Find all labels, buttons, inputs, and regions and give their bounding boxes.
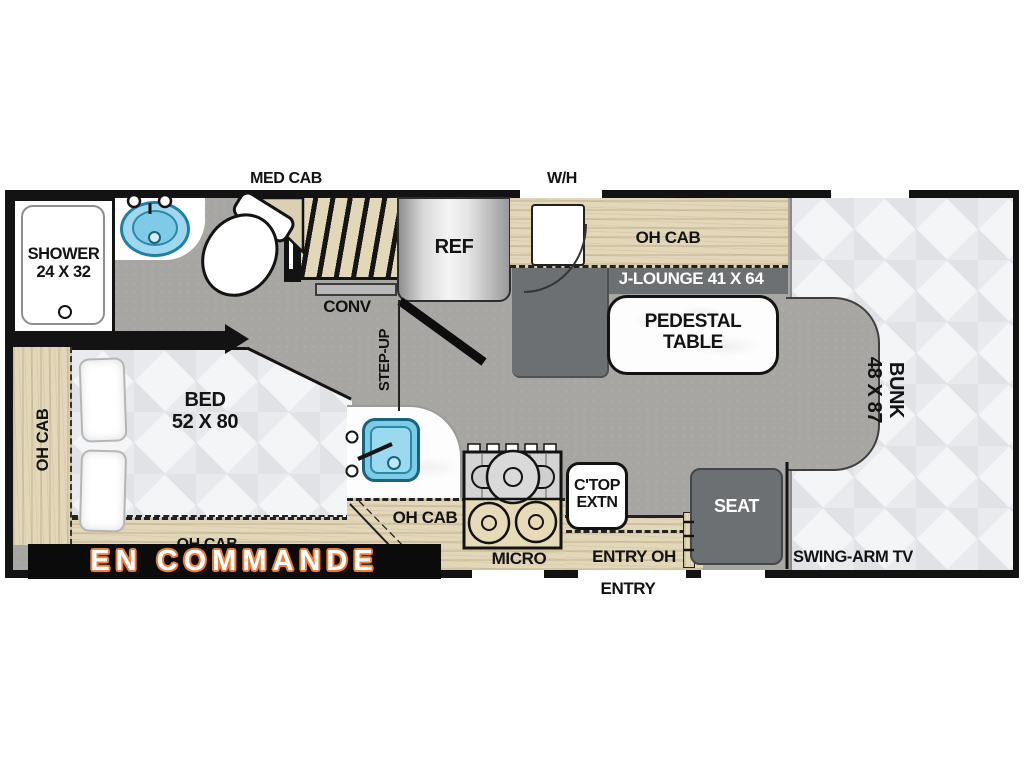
bed-label-line1: BED <box>140 390 270 412</box>
j-lounge-seat <box>512 268 609 378</box>
pillow <box>79 449 127 532</box>
kitchen-sink-drain <box>387 456 401 470</box>
ctop-label-line1: C'TOP <box>566 477 628 494</box>
step-up-label: STEP-UP <box>377 320 397 400</box>
pedestal-label-line2: TABLE <box>607 333 779 354</box>
window-gap <box>520 189 602 198</box>
shower-drain <box>58 305 72 319</box>
pillow <box>79 357 128 443</box>
bunk-label: BUNK 48 X 87 <box>856 315 906 465</box>
med-cab-door <box>289 205 293 269</box>
conv-cabinet <box>301 198 397 280</box>
oh-cab-left-label: OH CAB <box>35 402 55 478</box>
micro-label: MICRO <box>479 550 559 568</box>
water-heater-label: W/H <box>522 170 602 187</box>
status-banner: EN COMMANDE <box>28 544 441 579</box>
shower-label: SHOWER 24 X 32 <box>16 246 111 282</box>
ctop-extn-label: C'TOP EXTN <box>566 477 628 512</box>
bed-label-line2: 52 X 80 <box>140 412 270 434</box>
entry-door-gap <box>578 570 686 578</box>
entry-oh-label: ENTRY OH <box>570 548 698 566</box>
j-lounge-label: J-LOUNGE 41 X 64 <box>596 270 786 288</box>
conv-label: CONV <box>307 298 387 316</box>
oh-cab-kitchen-label: OH CAB <box>385 509 465 527</box>
pedestal-label-line1: PEDESTAL <box>607 312 779 333</box>
water-heater-door <box>531 204 585 266</box>
ref-label: REF <box>400 237 508 259</box>
window-gap <box>831 189 909 198</box>
shower-label-line2: 24 X 32 <box>16 264 111 282</box>
bath-sink-drain <box>148 231 161 244</box>
shower-label-line1: SHOWER <box>16 246 111 264</box>
conv-tray <box>315 283 397 296</box>
swing-arm-tv-label: SWING-ARM TV <box>793 549 953 567</box>
bed-label: BED 52 X 80 <box>140 390 270 433</box>
rv-floorplan: MED CAB W/H ENTRY BUNK 48 X 87 SWING-ARM… <box>0 0 1024 768</box>
status-banner-text: EN COMMANDE <box>90 545 378 578</box>
oh-cab-top-label: OH CAB <box>598 229 738 247</box>
bunk-label-line1: BUNK <box>884 315 906 465</box>
bunk-label-line2: 48 X 87 <box>863 315 885 465</box>
window-gap <box>472 570 544 578</box>
pedestal-table-label: PEDESTAL TABLE <box>607 312 779 353</box>
seat-label: SEAT <box>690 497 783 516</box>
med-cab-label: MED CAB <box>231 170 341 187</box>
window-gap <box>701 570 765 578</box>
entry-label: ENTRY <box>578 580 678 598</box>
seat <box>690 468 783 565</box>
ctop-label-line2: EXTN <box>566 494 628 511</box>
